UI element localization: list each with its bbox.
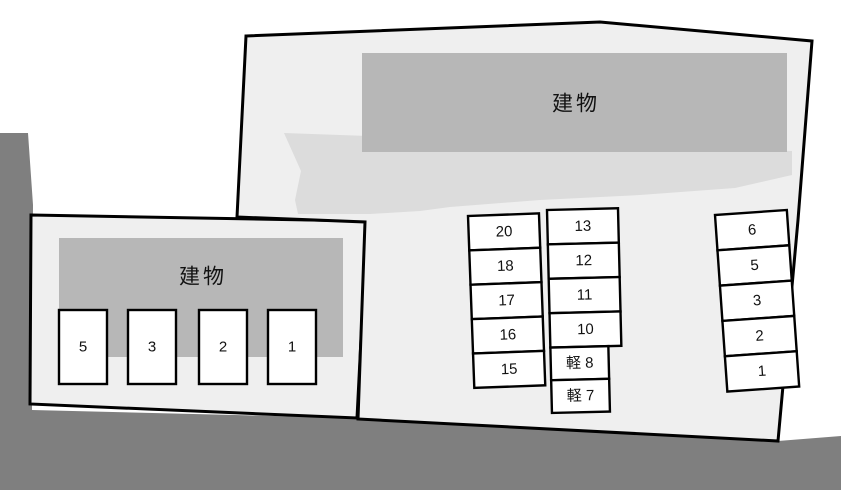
left-building-label: 建物: [179, 266, 227, 289]
stall-label: 5: [79, 339, 87, 356]
stall-label: 軽 8: [566, 355, 594, 373]
stall-label: 10: [577, 321, 594, 338]
stall-label: 2: [755, 327, 765, 345]
stall-label: 1: [288, 339, 296, 356]
site-plan-canvas: 建物 建物 5 3 2 1 20 18 17 16 15: [0, 0, 841, 490]
stall-label: 12: [575, 252, 592, 269]
stall-label: 18: [497, 257, 514, 275]
middle-stall-column-a: 20 18 17 16 15: [468, 213, 545, 387]
parking-site-plan: 建物 建物 5 3 2 1 20 18 17 16 15: [0, 0, 841, 490]
stall-label: 1: [757, 363, 767, 381]
stall-label: 2: [219, 339, 227, 356]
stall-label: 3: [148, 339, 156, 356]
stall-label: 16: [499, 326, 516, 344]
stall-label: 20: [495, 223, 512, 241]
stall-label: 15: [500, 361, 517, 379]
stall-label: 軽 7: [567, 387, 595, 405]
stall-label: 3: [752, 292, 762, 310]
stall-label: 6: [747, 221, 757, 239]
stall-label: 17: [498, 292, 515, 310]
stall-label: 11: [577, 286, 593, 303]
stall-label: 13: [574, 218, 591, 235]
right-building-label: 建物: [552, 93, 600, 116]
stall-label: 5: [750, 257, 760, 275]
right-stall-column: 6 5 3 2 1: [715, 210, 799, 392]
